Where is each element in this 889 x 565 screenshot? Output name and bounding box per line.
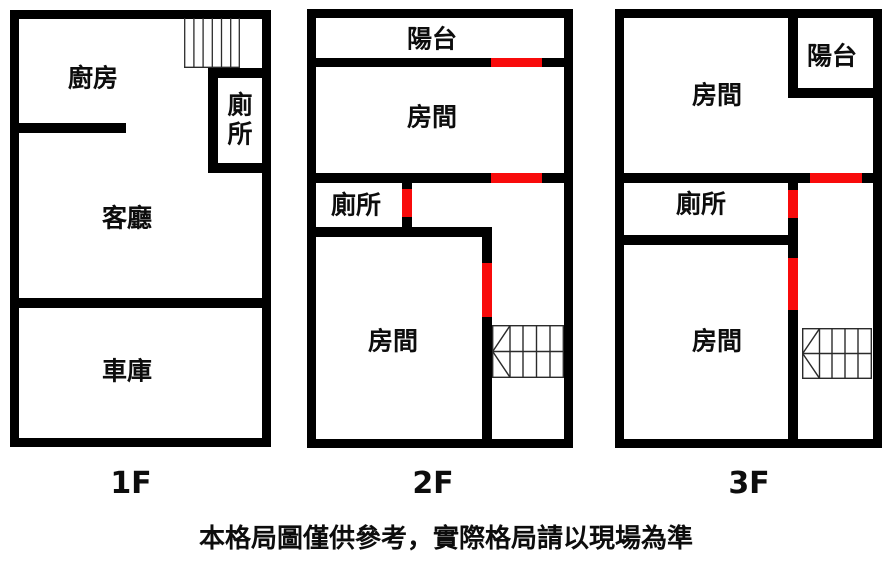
door-marker-3f-bedroom-bottom: [788, 258, 798, 310]
room-label-bedroom-bottom-3f: 房間: [692, 329, 742, 354]
wall-2f-top: [307, 9, 573, 18]
door-marker-2f-bedroom-bottom: [482, 263, 492, 317]
wall-2f-bottom: [307, 439, 573, 448]
floor-label-1f: 1F: [110, 469, 151, 499]
door-marker-2f-bedroom-top: [491, 173, 542, 183]
wall-1f-bottom: [10, 438, 271, 447]
disclaimer-text: 本格局圖僅供參考，實際格局請以現場為準: [199, 526, 693, 552]
floor-label-3f: 3F: [728, 469, 769, 499]
wall-1f-toilet-bottom: [208, 163, 271, 173]
wall-1f-left: [10, 10, 19, 447]
wall-1f-garage-divider: [10, 298, 271, 308]
wall-3f-right: [873, 9, 882, 448]
room-label-toilet-3f: 廁所: [676, 192, 726, 217]
room-label-bedroom-bottom-2f: 房間: [368, 329, 418, 354]
stairs-icon-2f: [492, 325, 564, 378]
room-label-garage-1f: 車庫: [102, 359, 152, 384]
wall-3f-inner-vertical: [788, 183, 798, 439]
floorplan-canvas: 廚房 廁所 客廳 車庫 1F 陽台 房間 廁所 房: [0, 0, 889, 565]
door-marker-2f-balcony: [491, 58, 542, 67]
wall-3f-balcony-bottom: [788, 88, 882, 98]
floor-label-2f: 2F: [412, 469, 453, 499]
room-label-living-room-1f: 客廳: [102, 206, 152, 231]
door-marker-3f-toilet: [788, 190, 798, 218]
wall-1f-toilet-left: [208, 68, 218, 173]
room-label-toilet-1f: 廁所: [227, 91, 253, 149]
room-label-bedroom-top-3f: 房間: [692, 83, 742, 108]
wall-2f-right: [564, 9, 573, 448]
wall-3f-top: [615, 9, 882, 18]
room-label-bedroom-top-2f: 房間: [407, 105, 457, 130]
wall-1f-toilet-top: [208, 68, 271, 78]
wall-3f-left: [615, 9, 624, 448]
stairs-icon-3f: [802, 328, 872, 379]
room-label-toilet-2f: 廁所: [331, 193, 381, 218]
door-marker-3f-bedroom-top: [810, 173, 862, 183]
wall-2f-bedroom-bottom-right: [482, 227, 492, 439]
wall-3f-balcony-left: [788, 9, 798, 98]
wall-2f-toilet-bottom: [307, 227, 492, 237]
wall-3f-bottom: [615, 439, 882, 448]
wall-3f-toilet-bottom: [615, 235, 798, 245]
door-marker-2f-toilet: [402, 189, 412, 217]
room-label-kitchen-1f: 廚房: [68, 66, 118, 91]
wall-1f-kitchen-divider: [10, 123, 126, 133]
stairs-icon-1f: [184, 18, 240, 68]
room-label-balcony-2f: 陽台: [407, 27, 457, 52]
room-label-balcony-3f: 陽台: [807, 44, 857, 69]
